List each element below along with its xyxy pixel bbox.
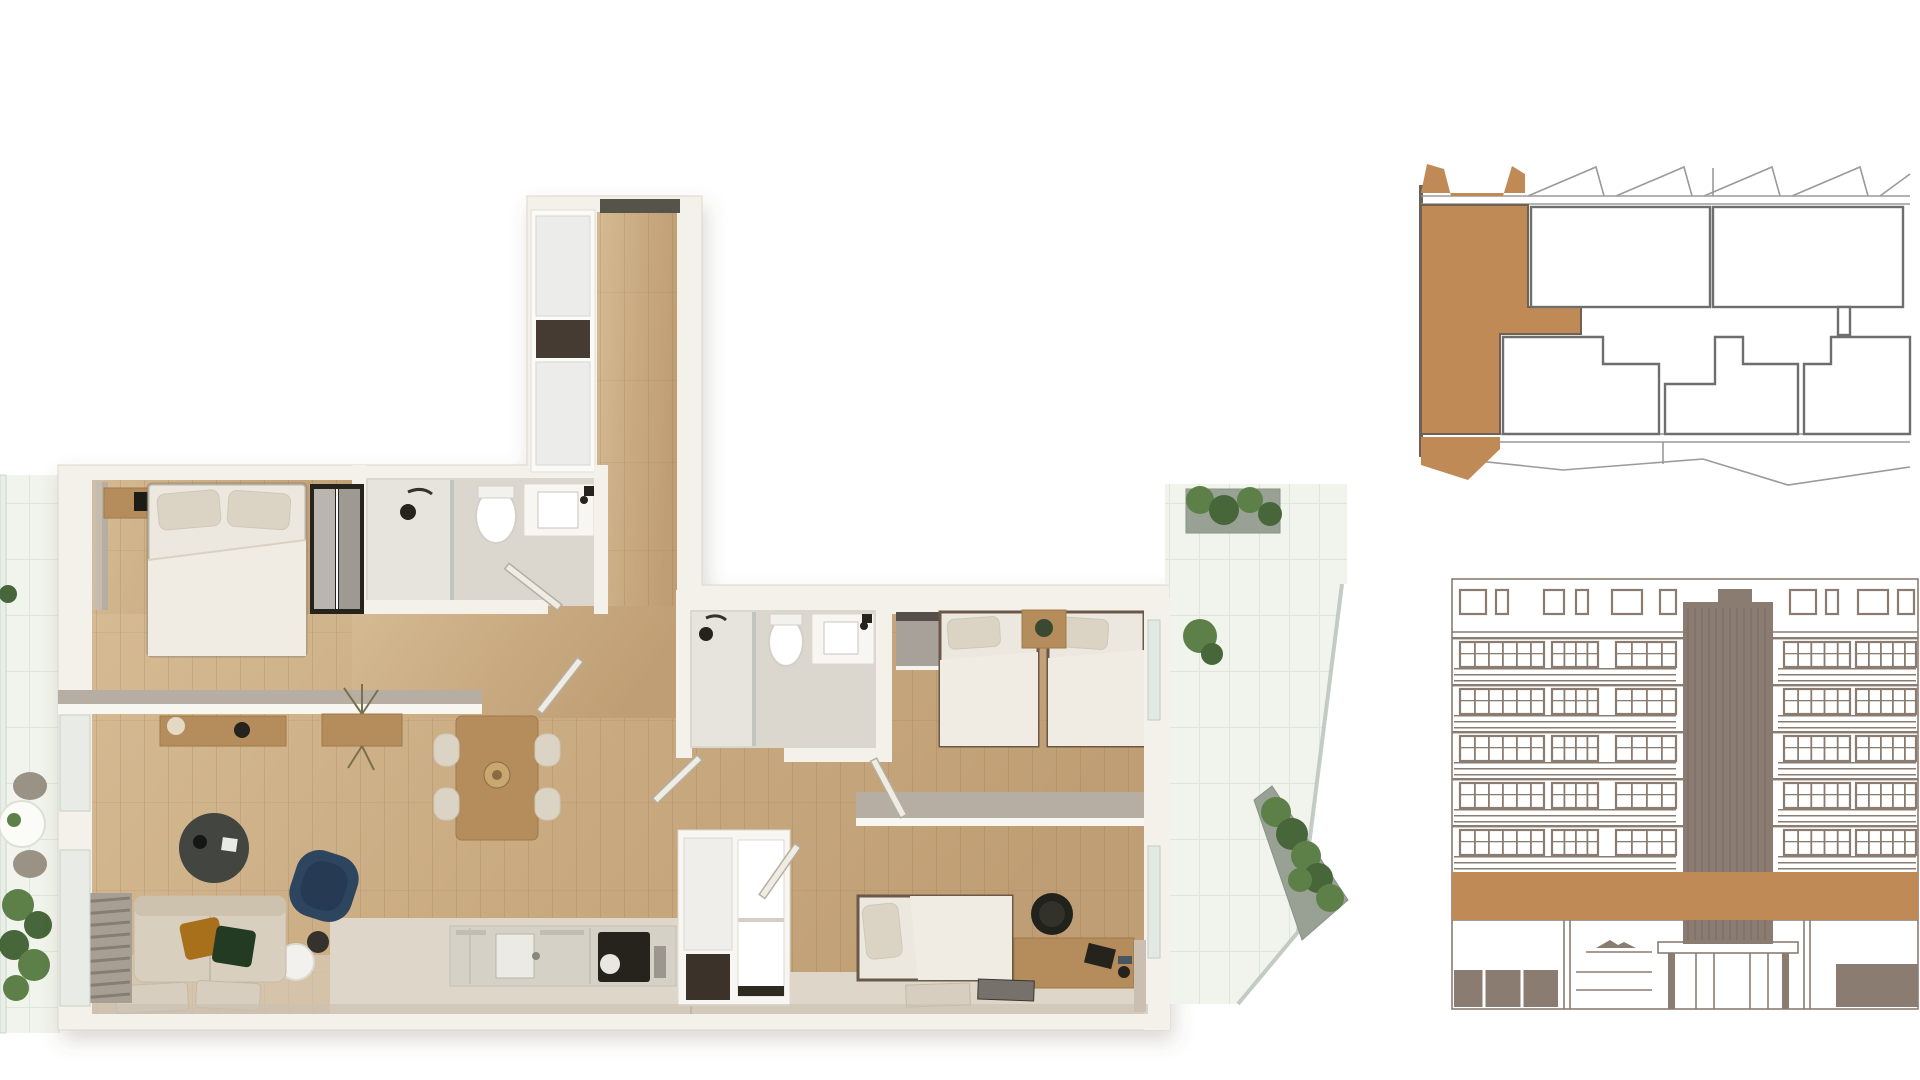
sink bbox=[496, 934, 534, 978]
elevation-highlight-band bbox=[1452, 872, 1918, 920]
cushion-green bbox=[211, 925, 256, 968]
render-canvas bbox=[0, 0, 1920, 1080]
chair bbox=[535, 734, 560, 766]
double-bed bbox=[148, 484, 306, 656]
logo-mountain-mark bbox=[1596, 940, 1636, 948]
balcony-chair bbox=[13, 850, 47, 878]
balcony-chair bbox=[13, 772, 47, 800]
mat-dark bbox=[978, 979, 1035, 1001]
coffee-table bbox=[179, 813, 249, 883]
storefront-block bbox=[1454, 970, 1558, 1007]
plant-pot bbox=[1035, 619, 1053, 637]
keyplan-sawtooth bbox=[1528, 167, 1910, 196]
building-elevation bbox=[1446, 572, 1920, 1020]
single-bed bbox=[858, 896, 1012, 980]
terrace-top-right bbox=[1165, 484, 1347, 584]
window bbox=[60, 850, 90, 1006]
chair bbox=[535, 788, 560, 820]
mat bbox=[906, 983, 971, 1007]
window bbox=[1148, 620, 1160, 720]
chair bbox=[434, 788, 459, 820]
chair bbox=[434, 734, 459, 766]
balcony-table bbox=[0, 801, 45, 847]
faucet bbox=[532, 952, 540, 960]
floor-plan-3d bbox=[0, 0, 1400, 1080]
balcony-left bbox=[0, 475, 60, 1033]
window bbox=[60, 715, 90, 811]
window bbox=[1148, 846, 1160, 958]
shower-head bbox=[699, 627, 713, 641]
balcony-right-angled bbox=[1170, 584, 1348, 1004]
sliding-wardrobe bbox=[310, 484, 364, 614]
storefront-block bbox=[1836, 964, 1918, 1007]
shower bbox=[368, 480, 450, 604]
bathroom-1 bbox=[352, 465, 608, 614]
entry-door bbox=[600, 199, 680, 213]
bowl bbox=[234, 722, 250, 738]
half-wall bbox=[58, 690, 482, 706]
apartment bbox=[58, 196, 1170, 1030]
wardrobe-niche bbox=[536, 320, 590, 358]
storage-unit bbox=[678, 830, 790, 1006]
shower-head bbox=[400, 504, 416, 520]
wing-top-wall bbox=[676, 590, 1148, 610]
dark-niche bbox=[686, 954, 730, 1000]
planter-box bbox=[322, 714, 402, 746]
sofa bbox=[134, 896, 286, 982]
tall-faucet bbox=[654, 946, 666, 978]
key-plan bbox=[1413, 152, 1918, 500]
